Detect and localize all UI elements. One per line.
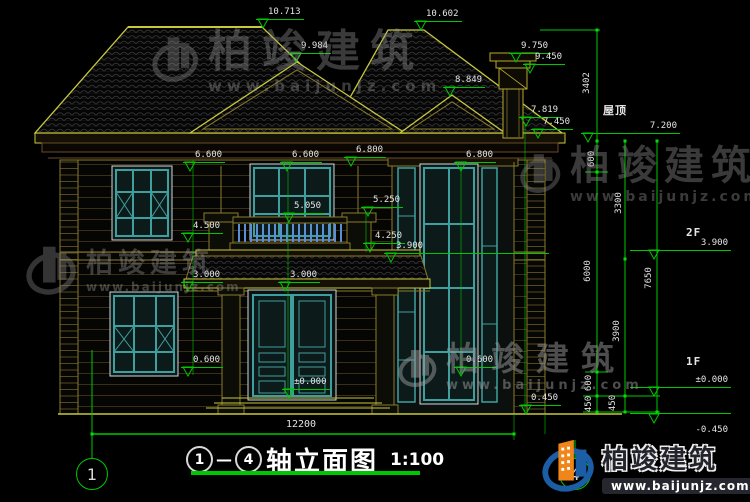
elevation-marker-chimney-cap: 9.450	[523, 52, 565, 65]
vdim-600-top: 600	[587, 142, 597, 176]
elevation-marker-eave-6600-b: 6.600	[280, 150, 322, 163]
elevation-marker-gable-peak: 9.984	[289, 41, 331, 54]
vdim-6000: 6000	[583, 254, 593, 288]
elevation-marker-1f-level: ±0.000	[630, 375, 731, 388]
brand-url: www.baijunjz.com	[602, 478, 750, 494]
title-axis-start-bubble: 1	[186, 446, 213, 473]
title-dash: —	[216, 450, 232, 469]
elevation-marker-ridge-right: 10.602	[414, 9, 462, 22]
elevation-marker-door-0000: ±0.000	[282, 377, 330, 390]
elevation-marker-2f-level: 3.900	[630, 238, 731, 251]
window-1f-left	[110, 292, 178, 376]
elevation-marker-eave-6800-a: 6.800	[344, 145, 386, 158]
elevation-marker-4500: 4.500	[181, 221, 223, 234]
title-axis-end-bubble: 4	[235, 446, 262, 473]
vdim-3300: 3300	[614, 186, 624, 220]
elevation-marker-5250: 5.250	[361, 195, 403, 208]
elevation-marker-eave-6600-a: 6.600	[183, 150, 225, 163]
elevation-marker-3000-center: 3.000	[278, 270, 320, 283]
elevation-marker-eave-6800-b: 6.800	[454, 150, 496, 163]
elevation-marker-roof-level: 7.200	[581, 121, 680, 134]
roof-level-label: 屋顶	[603, 102, 627, 118]
elevation-marker-5050: 5.050	[282, 201, 324, 214]
vdim-7650: 7650	[644, 261, 654, 295]
elevation-marker-small-gable: 8.849	[443, 75, 485, 88]
elevation-marker-3000-left: 3.000	[181, 270, 223, 283]
hdim-total-width: 12200	[270, 419, 332, 430]
elevation-drawing-canvas: 10.713 10.602 9.984 8.849 9.750 9.450 7.…	[0, 0, 750, 502]
brand-name: 柏竣建筑	[602, 439, 718, 476]
elevation-marker-0450-right: 0.450	[519, 393, 561, 406]
window-2f-left	[112, 166, 172, 240]
elevation-marker-0600-left: 0.600	[181, 355, 223, 368]
title-scale: 1:100	[390, 450, 444, 470]
elevation-marker-eave-bottom: 7.450	[531, 117, 573, 130]
axis-bubble-1: 1	[76, 458, 108, 490]
elevation-marker-minus-0450: -0.450	[630, 413, 731, 436]
vdim-3402: 3402	[582, 66, 592, 100]
elevation-marker-3900-mid: 3.900	[384, 241, 549, 254]
first-floor-label: 1F	[686, 355, 701, 368]
vdim-450-a: 450	[584, 387, 594, 421]
brand-building-icon	[542, 436, 598, 496]
title-underline	[191, 471, 420, 475]
vdim-3900: 3900	[612, 314, 622, 348]
elevation-marker-ridge-left: 10.713	[256, 7, 304, 20]
elevation-marker-0600-right: 0.600	[454, 355, 496, 368]
brand-logo: 柏竣建筑 www.baijunjz.com	[542, 436, 750, 496]
vdim-450-b: 450	[608, 386, 618, 420]
